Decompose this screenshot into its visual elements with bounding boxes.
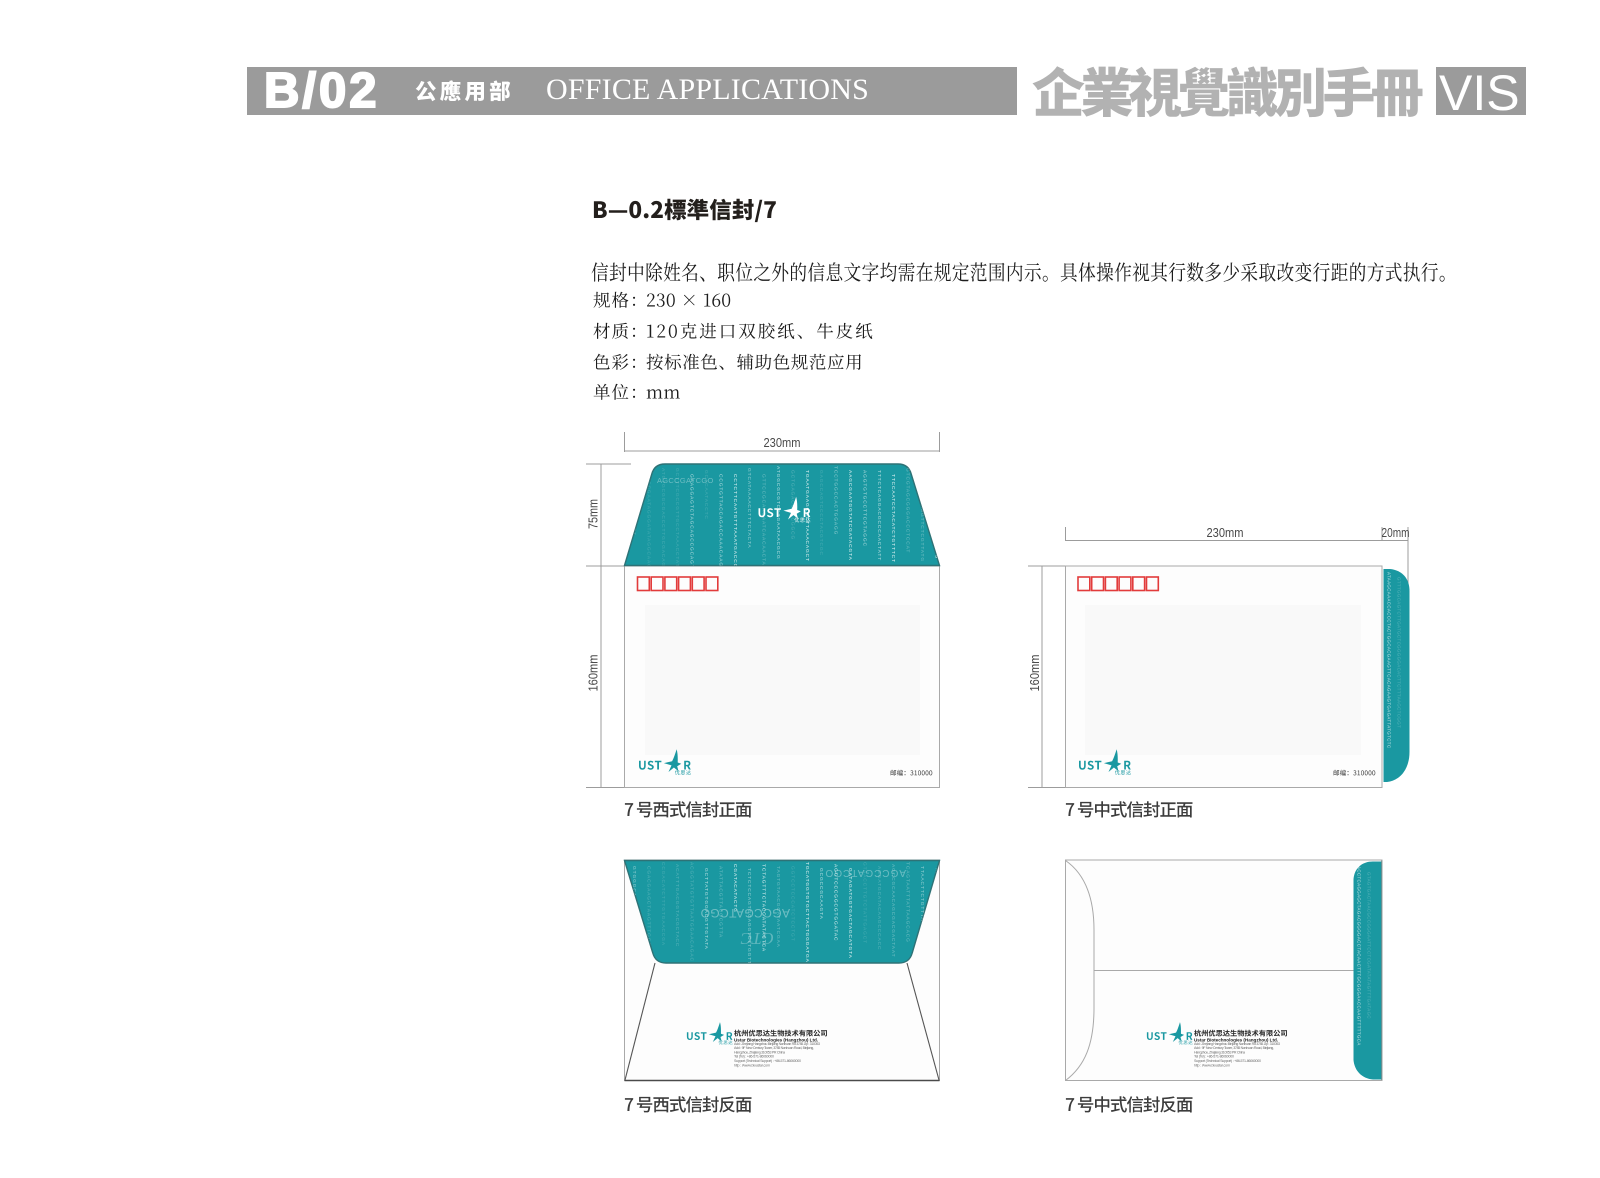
svg-text:GTTCCGCAAGAATCAACAACTA: GTTCCGCAAGAATCAACAACTA [761, 474, 767, 566]
svg-text:20mm: 20mm [1382, 526, 1410, 540]
svg-text:ATATTACGTTACGCGTTA: ATATTACGTTACGCGTTA [717, 866, 723, 938]
svg-text:TTCCAATCCTACATCTGTTTCT: TTCCAATCCTACATCTGTTTCT [890, 474, 896, 563]
svg-text:TCATAATCTCAGTGCTGGTGTG: TCATAATCTCAGTGCTGGTGTG [933, 468, 939, 559]
svg-text:GTC: GTC [740, 929, 774, 948]
svg-text:TACTTATTAGGTTCTCGTTATG: TACTTATTAGGTTCTCGTTATG [919, 474, 925, 562]
svg-text:GTAGTGACTAACGCCGGGAATTCCTCGATA: GTAGTGACTAACGCCGGGAATTCCTCGATATATAGTTTGA… [1367, 872, 1372, 1019]
svg-text:160mm: 160mm [587, 655, 601, 692]
svg-text:http : //www.bioustar.com: http : //www.bioustar.com [1194, 1063, 1230, 1067]
svg-text:GTCATAAAACCTTTCTACTA: GTCATAAAACCTTTCTACTA [746, 468, 752, 549]
svg-text:CCGTGTTACCAGACCAAACAAGAC: CCGTGTTACCAGACCAAACAAGAC [717, 474, 723, 575]
svg-text:GAGCCAGTCCCCTACGTCGC: GAGCCAGTCCCCTACGTCGC [818, 470, 824, 556]
svg-text:http : //www.bioustar.com: http : //www.bioustar.com [734, 1063, 770, 1067]
svg-text:GATAGATGGTGACTAGCATGTA: GATAGATGGTGACTAGCATGTA [847, 868, 853, 959]
svg-text:ACGGTATGTGTTAATGGAACAGAC: ACGGTATGTGTTAATGGAACAGAC [689, 862, 695, 962]
svg-text:ATAAGCAAACCACCCTACTGGCACGAAGTT: ATAAGCAAACCACCCTACTGGCACGAAGTTCACAGAAGTG… [1387, 572, 1392, 748]
svg-text:CCGACATCTTTGTGAACCGA: CCGACATCTTTGTGAACCGA [660, 862, 666, 946]
svg-text:GGTCCTCCCATCTCCTGT: GGTCCTCCCATCTCCTGT [789, 866, 795, 942]
svg-text:GCGCCGCAAGTA: GCGCCGCAAGTA [818, 868, 824, 920]
svg-text:75mm: 75mm [587, 499, 601, 529]
svg-text:ACCTCAGGAGCTAGACGGGGACCTACAACT: ACCTCAGGAGCTAGACGGGGACCTACAACTTTGCGGGAAC… [1357, 866, 1362, 1046]
svg-text:AGGTGTGCCTTCGTAGGC: AGGTGTGCCTTCGTAGGC [861, 470, 867, 547]
svg-text:AGCCGATCGO: AGCCGATCGO [825, 867, 906, 878]
svg-text:AAGCGAATGGTATCGATACGTA: AAGCGAATGGTATCGATACGTA [847, 470, 853, 561]
svg-text:ACATTTGACGGTACGCTACC: ACATTTGACGGTACGCTACC [674, 864, 680, 947]
svg-text:230mm: 230mm [1207, 526, 1244, 540]
svg-text:230mm: 230mm [764, 436, 801, 450]
svg-text:TGCATGGTGTGCTTACTGGGATGA: TGCATGGTGTGCTTACTGGGATGA [804, 862, 810, 963]
svg-text:160mm: 160mm [1028, 655, 1042, 692]
svg-text:GTTTGGCAGTCTTGATGCTCGGGGGACACT: GTTTGGCAGTCTTGATGCTCGGGGGACACTTCTTTAAGCT… [1397, 577, 1402, 728]
svg-text:VIS: VIS [1439, 65, 1520, 121]
svg-text:CCTCTTCAATGTTTAAATGACCCT: CCTCTTCAATGTTTAAATGACCCT [732, 474, 738, 572]
svg-text:AGCCGATCGO: AGCCGATCGO [657, 476, 714, 485]
svg-text:AGCCGATCGO: AGCCGATCGO [700, 906, 790, 920]
svg-text:GTCGTAGCGGGACCCTCCAT: GTCGTAGCGGGACCCTCCAT [905, 468, 911, 553]
svg-text:CGATACATACTG: CGATACATACTG [732, 864, 738, 913]
svg-text:TCCTGGCCACTGGAGG: TCCTGGCCACTGGAGG [833, 466, 839, 535]
svg-text:OFFICE APPLICATIONS: OFFICE APPLICATIONS [546, 73, 869, 106]
svg-text:GAAGGAGTCTAGCAGCCGCAGT: GAAGGAGTCTAGCAGCCGCAGT [689, 474, 695, 569]
svg-text:TTTCTCAGGACGCCCAACTATT: TTTCTCAGGACGCCCAACTATT [876, 470, 882, 561]
svg-text:B/02: B/02 [264, 64, 380, 118]
